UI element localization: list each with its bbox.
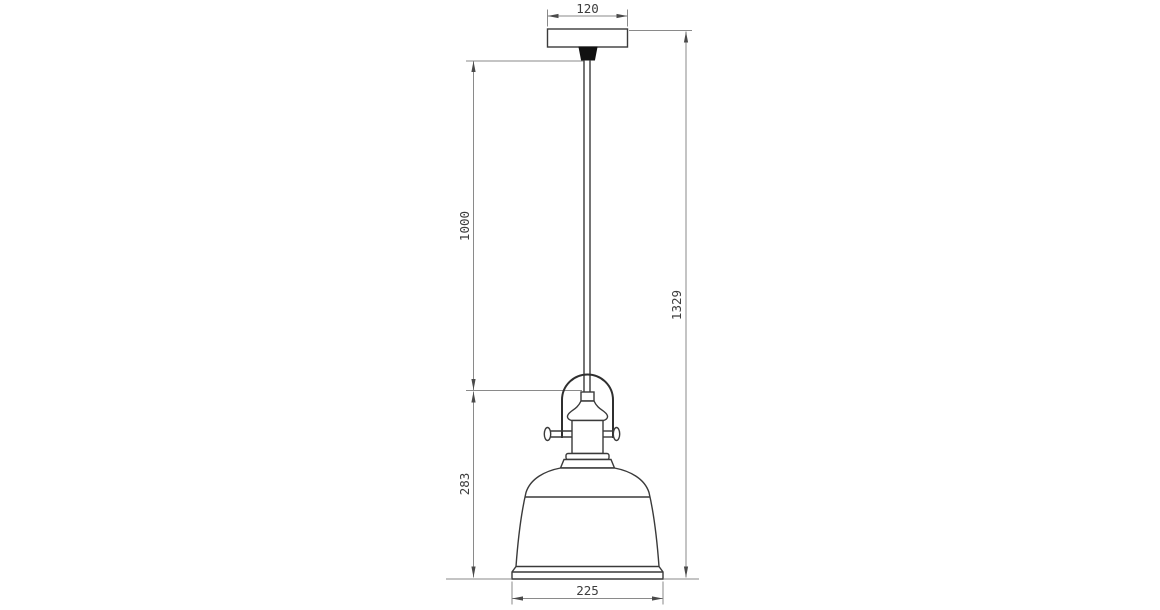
dimension-cord-length: 1000 xyxy=(457,61,584,391)
socket-assembly xyxy=(561,392,615,468)
socket-flange xyxy=(566,454,609,460)
right-screw-head xyxy=(613,428,619,441)
dim-label-lamp-height: 283 xyxy=(457,473,472,496)
arrowhead-right xyxy=(617,14,628,18)
cord-grip xyxy=(581,392,594,401)
dimension-canopy-width: 120 xyxy=(548,1,628,27)
arrowhead-left xyxy=(512,596,523,600)
drawing-svg: 120 1000 283 1329 225 xyxy=(0,0,1160,610)
dim-label-canopy-width: 120 xyxy=(576,1,599,16)
arrowhead-up xyxy=(471,392,475,403)
cord-strain-relief xyxy=(579,47,597,60)
arrowhead-right xyxy=(652,596,663,600)
arrowhead-down xyxy=(471,567,475,578)
arrowhead-up xyxy=(471,61,475,72)
dim-label-shade-diameter: 225 xyxy=(576,583,599,598)
ceiling-canopy xyxy=(548,29,628,60)
socket-cylinder xyxy=(572,421,603,454)
suspension-cord xyxy=(584,60,590,393)
socket-cap-cone xyxy=(567,401,607,421)
shade-outline xyxy=(512,468,663,579)
socket-collar xyxy=(561,460,615,469)
lamp-shade xyxy=(512,468,663,579)
canopy-body xyxy=(548,29,628,47)
arrowhead-down xyxy=(684,567,688,578)
dimension-lamp-height: 283 xyxy=(457,392,476,578)
left-screw-head xyxy=(544,428,550,441)
arrowhead-left xyxy=(548,14,559,18)
arrowhead-down xyxy=(471,379,475,390)
dim-label-total-height: 1329 xyxy=(669,290,684,320)
pendant-lamp-dimension-drawing: 120 1000 283 1329 225 xyxy=(0,0,1160,610)
dimension-shade-diameter: 225 xyxy=(512,582,663,605)
arrowhead-up xyxy=(684,32,688,43)
dim-label-cord-length: 1000 xyxy=(457,211,472,241)
